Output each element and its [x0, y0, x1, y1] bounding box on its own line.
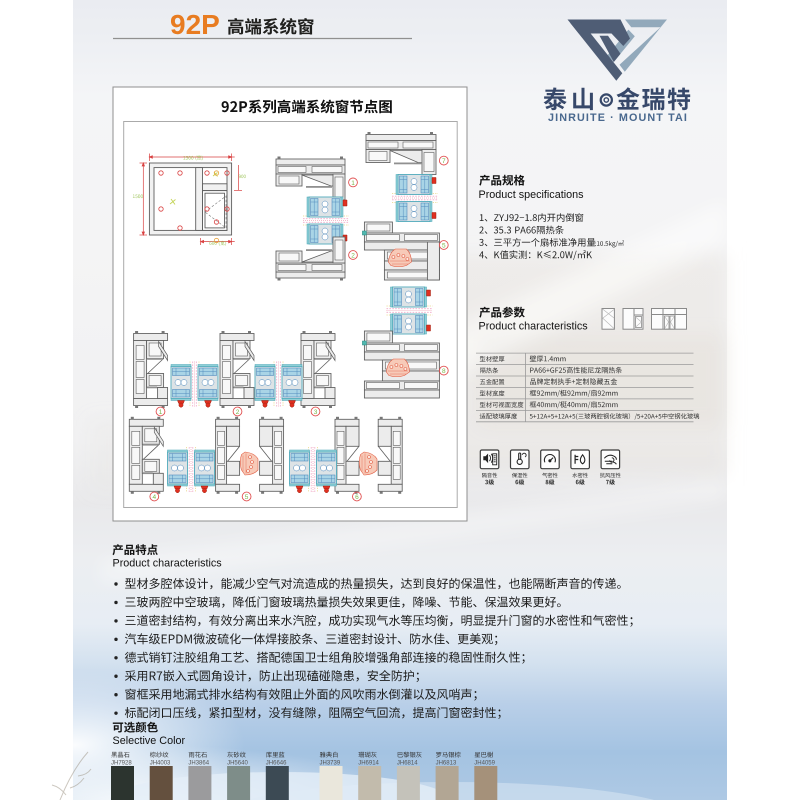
svg-text:JINRUITE · MOUNT TAI: JINRUITE · MOUNT TAI	[548, 112, 688, 124]
svg-text:Selective Color: Selective Color	[113, 735, 186, 747]
svg-text:JH6646: JH6646	[266, 761, 287, 767]
svg-text:1: 1	[159, 409, 163, 416]
svg-text:3: 3	[314, 409, 318, 416]
svg-text:Product specifications: Product specifications	[479, 189, 585, 201]
svg-text:5: 5	[245, 494, 249, 501]
svg-text:JH6914: JH6914	[358, 761, 379, 767]
svg-text:5: 5	[442, 243, 446, 250]
svg-text:Product characteristics: Product characteristics	[479, 321, 589, 333]
svg-text:JH7928: JH7928	[111, 761, 132, 767]
svg-text:2: 2	[351, 253, 355, 260]
svg-text:JH3864: JH3864	[188, 761, 209, 767]
svg-text:4: 4	[152, 494, 156, 501]
svg-text:JH6814: JH6814	[397, 761, 418, 767]
svg-text:7: 7	[442, 158, 446, 165]
svg-text:92P: 92P	[170, 9, 220, 40]
svg-text:8: 8	[442, 368, 446, 375]
svg-text:1: 1	[351, 180, 355, 187]
svg-text:Product characteristics: Product characteristics	[113, 558, 223, 570]
svg-text:2: 2	[236, 409, 240, 416]
svg-text:6: 6	[355, 494, 359, 501]
svg-text:JH5640: JH5640	[227, 761, 248, 767]
svg-text:JH4003: JH4003	[150, 761, 171, 767]
svg-text:JH3739: JH3739	[320, 761, 341, 767]
svg-text:JH4059: JH4059	[474, 761, 495, 767]
svg-text:JH6813: JH6813	[436, 761, 457, 767]
